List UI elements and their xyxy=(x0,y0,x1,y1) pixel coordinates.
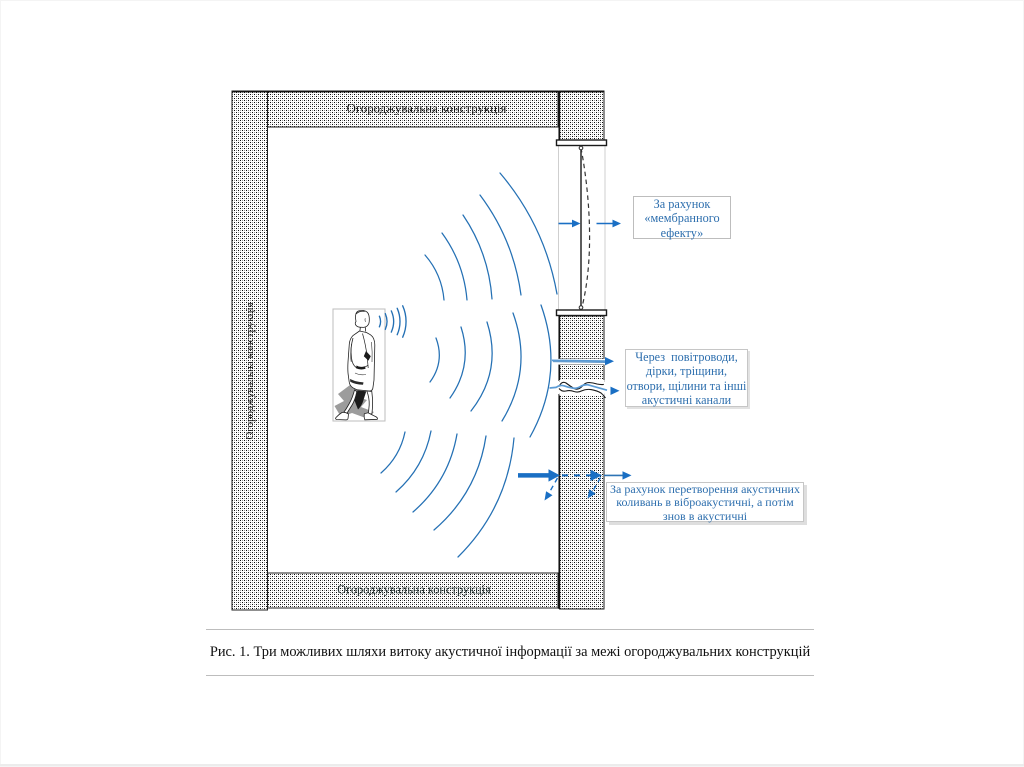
svg-text:Огороджувальна конструкція: Огороджувальна конструкція xyxy=(337,583,491,597)
svg-text:Огороджувальна конструкція: Огороджувальна конструкція xyxy=(244,302,256,439)
svg-text:Огороджувальна конструкція: Огороджувальна конструкція xyxy=(347,102,507,116)
